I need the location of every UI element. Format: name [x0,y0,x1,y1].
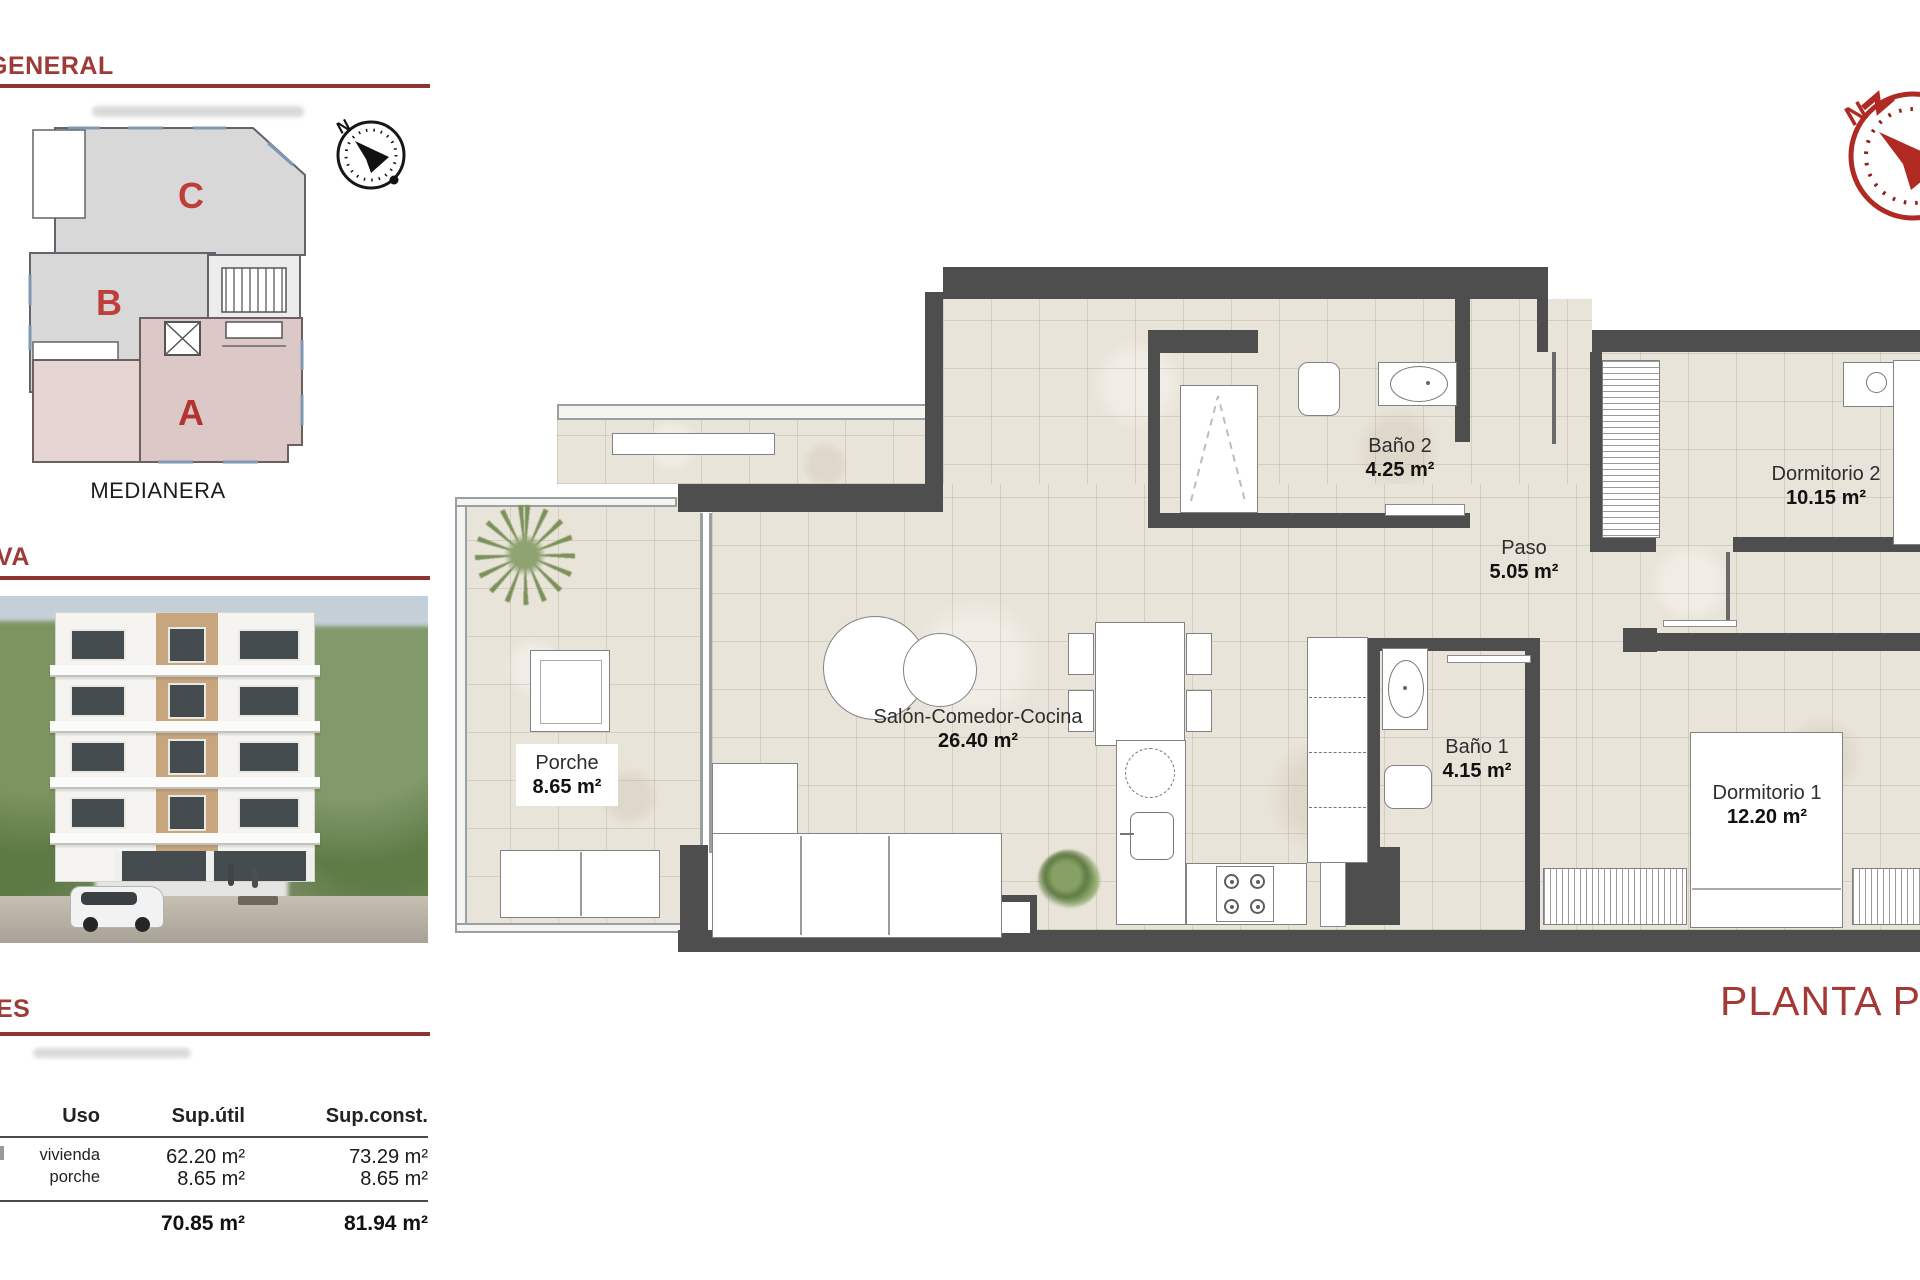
room-name: Dormitorio 1 [1713,781,1822,805]
room-label: Salón-Comedor-Cocina 26.40 m² [874,705,1083,753]
washing-machine [1125,748,1175,798]
room-name: Baño 2 [1366,434,1435,458]
site-plan-header: GENERAL [0,52,114,81]
bed [1893,360,1920,545]
room-area: 8.65 m² [533,775,602,799]
page: GENERAL [0,0,1920,1280]
compass-needle [1879,132,1920,190]
plan-title: PLANTA PRIMERA [1720,978,1920,1025]
porch-wall [455,923,705,933]
col-sup-const: Sup.const. [245,1105,428,1128]
illegible-text [33,1048,191,1058]
floor-upper [943,299,1592,513]
table-header-row: Uso Sup.útil Sup.const. [0,1105,430,1128]
car [70,886,164,928]
room-area: 10.15 m² [1772,486,1881,510]
faucet [1120,833,1134,835]
wall-segment [943,267,1537,299]
wall-segment [1590,537,1656,552]
wall-segment [678,484,943,512]
room-label: Dormitorio 2 10.15 m² [1772,462,1881,510]
table-row: vivienda 62.20 m² 73.29 m² [0,1146,430,1169]
palm-tree [475,505,575,605]
block-a-annex [33,360,140,462]
room-name: Paso [1490,536,1559,560]
lamp [1866,372,1887,393]
glass-door-line [700,513,703,853]
coffee-table [903,633,977,707]
render-header: VA [0,543,30,572]
faucet-dot [1403,686,1407,690]
sofa-seam [800,836,802,935]
person [228,864,234,886]
room-area: 4.25 m² [1366,458,1435,482]
cabinet-divider [1309,697,1366,698]
plant [1038,850,1100,908]
site-plan-drawing: C B A [8,100,358,500]
stove [1216,866,1274,922]
bench [238,896,278,905]
room-area: 26.40 m² [874,729,1083,753]
row-cons: 8.65 m² [245,1168,428,1191]
table-row: porche 8.65 m² 8.65 m² [0,1168,430,1191]
chair [1186,633,1212,675]
room-area: 4.15 m² [1443,759,1512,783]
room-area: 5.05 m² [1490,560,1559,584]
wall-segment [1537,267,1548,352]
cabinet-divider [1309,752,1366,753]
compass-needle [355,141,389,173]
total-util: 70.85 m² [100,1212,245,1236]
cabinet-divider [1309,807,1366,808]
towel-rail [1447,655,1531,663]
wardrobe [1852,868,1920,925]
wall-segment [1733,537,1920,552]
compass-n-label: N [334,115,354,138]
wardrobe [1602,360,1660,538]
sofa-seam [888,836,890,935]
room-label: Baño 2 4.25 m² [1366,434,1435,482]
door-leaf [1726,552,1730,624]
divider-line [0,576,430,580]
col-sup-util: Sup.útil [100,1105,245,1128]
block-a-label: A [178,392,204,433]
table-rule [0,1200,428,1202]
row-cons: 73.29 m² [245,1146,428,1169]
overhang-line [557,404,928,420]
compass-icon: N [330,110,412,196]
stair-landing [226,322,282,338]
stairs [222,268,286,312]
wall-segment [1148,330,1258,353]
wall-segment [925,292,943,484]
chair [1068,633,1094,675]
block-c-label: C [178,175,204,216]
tall-cabinets [1307,637,1368,863]
wall-segment [680,845,708,935]
porch-table-inner [540,660,602,724]
wall-segment [1592,330,1920,352]
total-cons: 81.94 m² [245,1212,428,1236]
room-name: Porche [533,751,602,775]
door-leaf [1663,620,1737,627]
site-plan-caption: MEDIANERA [38,478,278,504]
toilet [1298,362,1340,416]
room-name: Salón-Comedor-Cocina [874,705,1083,729]
sliding-door [1385,504,1465,516]
block-b-label: B [96,282,122,323]
divider-line [0,1032,430,1036]
chair [1186,690,1212,732]
row-util: 8.65 m² [100,1168,245,1191]
wall-segment [1525,638,1540,930]
row-label: porche [0,1168,100,1191]
divider-line [0,84,430,88]
sink-basin [1390,366,1448,402]
toilet [1384,765,1432,809]
room-name: Baño 1 [1443,735,1512,759]
room-label: Baño 1 4.15 m² [1443,735,1512,783]
bed-fold-line [1692,888,1841,890]
wall-segment [1590,352,1602,540]
room-label: Porche 8.65 m² [533,751,602,799]
wall-segment [1368,638,1380,848]
building-facade [55,612,315,882]
wall-segment [1623,633,1920,651]
room-area: 12.20 m² [1713,805,1822,829]
entrance-door-leaf [1552,352,1556,444]
areas-header: ES [0,995,30,1024]
wall-segment [1148,353,1160,515]
bench-seam [580,852,582,916]
room-label: Paso 5.05 m² [1490,536,1559,584]
porch-wall [455,497,467,933]
building-render [0,596,428,943]
dining-table [1095,622,1185,746]
table-rule [0,1136,428,1138]
patio [33,130,85,218]
sofa-seat [712,833,1002,938]
room-name: Dormitorio 2 [1772,462,1881,486]
person [252,868,258,888]
porch-wall [455,497,677,507]
shower [1180,385,1258,513]
wardrobe [1543,868,1687,925]
faucet-dot [1426,381,1430,385]
room-label: Dormitorio 1 12.20 m² [1713,781,1822,829]
compass-icon: N [1833,78,1920,234]
bed [1690,732,1843,928]
wall-segment [1455,299,1470,442]
compass-n-tick [1863,96,1893,110]
table-total-row: 70.85 m² 81.94 m² [0,1212,430,1236]
kitchen-sink [1130,812,1174,860]
col-uso: Uso [0,1105,100,1128]
terrace-planter [612,433,775,455]
row-util: 62.20 m² [100,1146,245,1169]
pavement [0,896,428,943]
row-label: vivienda [0,1146,100,1169]
